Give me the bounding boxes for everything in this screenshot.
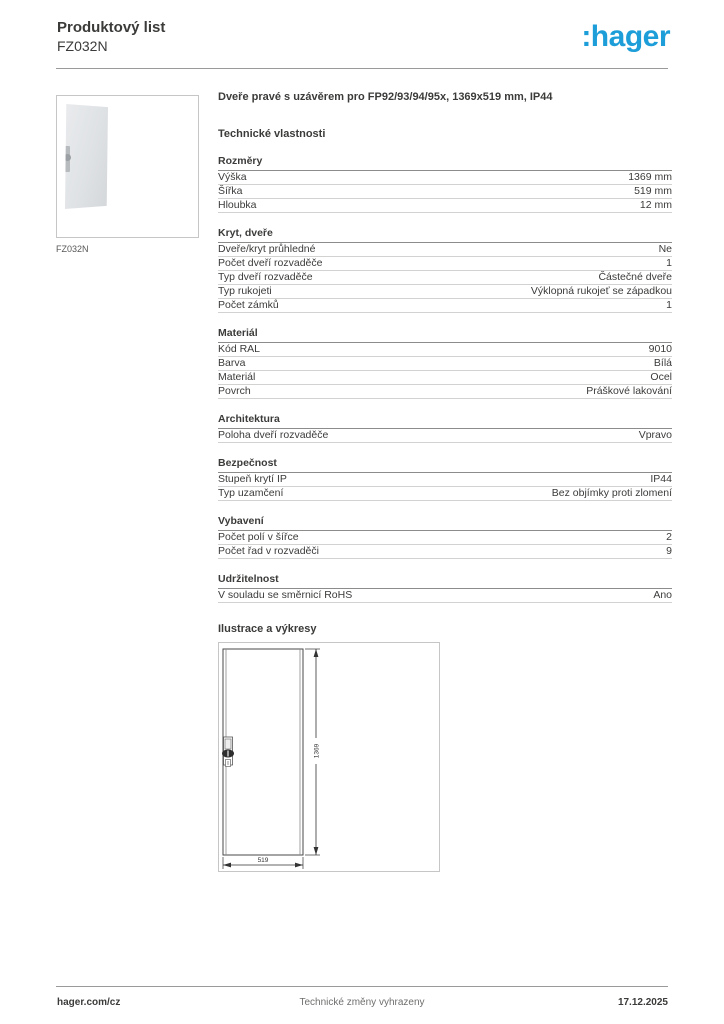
spec-value: Bez objímky proti zlomení (552, 487, 672, 500)
spec-row: Dveře/kryt průhlednéNe (218, 243, 672, 257)
section-title: Architektura (218, 413, 672, 429)
hager-logo: :hager (581, 21, 670, 53)
spec-value: Výklopná rukojeť se západkou (531, 285, 672, 298)
spec-sections: RozměryVýška1369 mmŠířka519 mmHloubka12 … (218, 155, 672, 603)
spec-section: MateriálKód RAL9010BarvaBíláMateriálOcel… (218, 327, 672, 399)
header-divider (56, 68, 668, 69)
technical-properties-heading: Technické vlastnosti (218, 128, 672, 141)
spec-row: Typ uzamčeníBez objímky proti zlomení (218, 487, 672, 501)
spec-value: Práškové lakování (586, 385, 672, 398)
datasheet-page: Produktový list FZ032N :hager FZ032N Dve… (0, 0, 724, 1024)
technical-drawing: 1369 519 (219, 643, 439, 871)
door-photo (65, 104, 108, 209)
footer-date: 17.12.2025 (618, 997, 668, 1008)
main-content: Dveře pravé s uzávěrem pro FP92/93/94/95… (218, 90, 672, 872)
spec-section: VybaveníPočet polí v šířce2Počet řad v r… (218, 515, 672, 559)
spec-row: PovrchPráškové lakování (218, 385, 672, 399)
footer-divider (56, 986, 668, 987)
spec-row: Počet řad v rozvaděči9 (218, 545, 672, 559)
spec-label: Stupeň krytí IP (218, 473, 287, 486)
spec-label: Typ rukojeti (218, 285, 272, 298)
spec-section: ArchitekturaPoloha dveří rozvaděčeVpravo (218, 413, 672, 443)
section-title: Bezpečnost (218, 457, 672, 473)
spec-section: BezpečnostStupeň krytí IPIP44Typ uzamčen… (218, 457, 672, 501)
drawing-height-label: 1369 (314, 743, 321, 758)
product-code: FZ032N (57, 38, 108, 55)
spec-row: Počet dveří rozvaděče1 (218, 257, 672, 271)
drawing-width-dimension: 519 (223, 857, 303, 869)
section-title: Kryt, dveře (218, 227, 672, 243)
spec-value: 2 (666, 531, 672, 544)
spec-value: 1 (666, 299, 672, 312)
document-title: Produktový list (57, 19, 165, 37)
spec-value: IP44 (650, 473, 672, 486)
spec-value: Vpravo (639, 429, 672, 442)
spec-label: Poloha dveří rozvaděče (218, 429, 328, 442)
section-title: Materiál (218, 327, 672, 343)
spec-value: 1 (666, 257, 672, 270)
spec-label: Povrch (218, 385, 251, 398)
door-handle-photo (65, 146, 70, 172)
spec-row: Stupeň krytí IPIP44 (218, 473, 672, 487)
spec-row: BarvaBílá (218, 357, 672, 371)
product-image-caption: FZ032N (56, 244, 89, 254)
spec-label: V souladu se směrnicí RoHS (218, 589, 352, 602)
spec-value: Bílá (654, 357, 672, 370)
spec-label: Kód RAL (218, 343, 260, 356)
product-image (56, 95, 199, 238)
spec-row: Hloubka12 mm (218, 199, 672, 213)
spec-section: UdržitelnostV souladu se směrnicí RoHSAn… (218, 573, 672, 603)
spec-value: 9 (666, 545, 672, 558)
spec-value: 12 mm (640, 199, 672, 212)
spec-label: Počet polí v šířce (218, 531, 299, 544)
spec-row: Počet polí v šířce2 (218, 531, 672, 545)
spec-value: 519 mm (634, 185, 672, 198)
product-title: Dveře pravé s uzávěrem pro FP92/93/94/95… (218, 90, 672, 104)
spec-label: Materiál (218, 371, 255, 384)
drawing-width-label: 519 (258, 857, 269, 864)
spec-value: Ne (659, 243, 672, 256)
spec-label: Typ dveří rozvaděče (218, 271, 313, 284)
spec-row: Typ dveří rozvaděčeČástečné dveře (218, 271, 672, 285)
spec-value: Ocel (650, 371, 672, 384)
spec-label: Šířka (218, 185, 243, 198)
drawing-door-handle (222, 737, 234, 767)
spec-label: Výška (218, 171, 247, 184)
door-knob-photo (64, 154, 71, 161)
section-title: Rozměry (218, 155, 672, 171)
spec-label: Barva (218, 357, 245, 370)
spec-row: Šířka519 mm (218, 185, 672, 199)
spec-label: Počet řad v rozvaděči (218, 545, 319, 558)
spec-row: Typ rukojetiVýklopná rukojeť se západkou (218, 285, 672, 299)
technical-drawing-box: 1369 519 (218, 642, 440, 872)
spec-value: Ano (653, 589, 672, 602)
spec-label: Hloubka (218, 199, 257, 212)
spec-label: Dveře/kryt průhledné (218, 243, 315, 256)
spec-value: Částečné dveře (598, 271, 672, 284)
spec-value: 1369 mm (628, 171, 672, 184)
spec-label: Počet dveří rozvaděče (218, 257, 322, 270)
section-title: Udržitelnost (218, 573, 672, 589)
drawing-door-outline (223, 649, 303, 855)
spec-section: RozměryVýška1369 mmŠířka519 mmHloubka12 … (218, 155, 672, 213)
illustrations-heading: Ilustrace a výkresy (218, 623, 672, 636)
drawing-height-dimension: 1369 (305, 649, 321, 855)
spec-row: V souladu se směrnicí RoHSAno (218, 589, 672, 603)
spec-value: 9010 (649, 343, 672, 356)
spec-row: Počet zámků1 (218, 299, 672, 313)
spec-row: Kód RAL9010 (218, 343, 672, 357)
spec-section: Kryt, dveřeDveře/kryt průhlednéNePočet d… (218, 227, 672, 313)
spec-label: Počet zámků (218, 299, 279, 312)
spec-row: MateriálOcel (218, 371, 672, 385)
spec-row: Poloha dveří rozvaděčeVpravo (218, 429, 672, 443)
section-title: Vybavení (218, 515, 672, 531)
spec-label: Typ uzamčení (218, 487, 283, 500)
footer-disclaimer: Technické změny vyhrazeny (0, 997, 724, 1008)
spec-row: Výška1369 mm (218, 171, 672, 185)
